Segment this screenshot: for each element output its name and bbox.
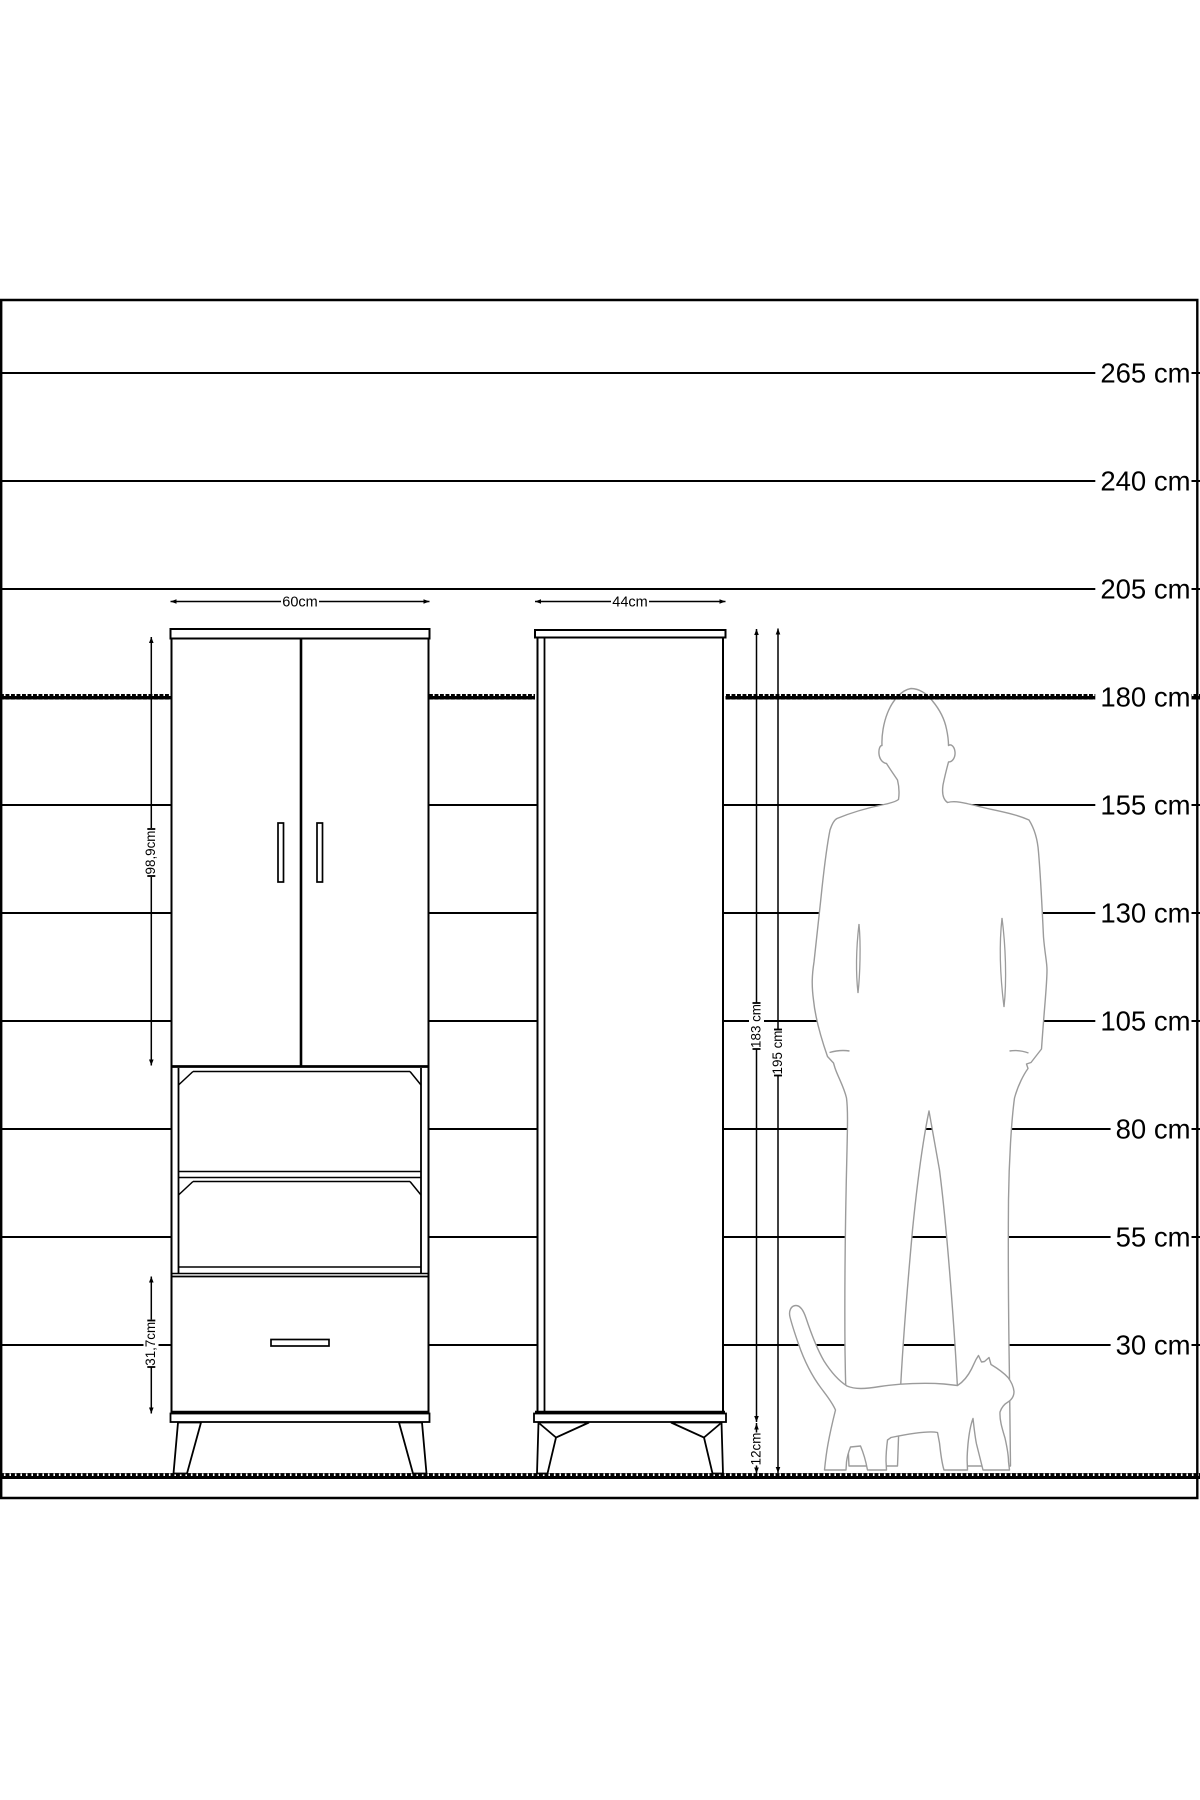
svg-text:195 cm: 195 cm — [770, 1031, 785, 1075]
svg-text:30 cm: 30 cm — [1116, 1330, 1191, 1361]
svg-text:55 cm: 55 cm — [1116, 1222, 1191, 1253]
svg-text:183 cm: 183 cm — [749, 1004, 764, 1048]
svg-text:80 cm: 80 cm — [1116, 1114, 1191, 1145]
svg-text:180 cm: 180 cm — [1100, 682, 1190, 713]
svg-text:98,9cm: 98,9cm — [143, 831, 158, 875]
svg-text:60cm: 60cm — [282, 595, 317, 611]
svg-text:155 cm: 155 cm — [1100, 790, 1190, 821]
svg-text:12cm: 12cm — [749, 1433, 764, 1466]
svg-text:130 cm: 130 cm — [1100, 898, 1190, 929]
svg-text:265 cm: 265 cm — [1100, 358, 1190, 389]
svg-text:205 cm: 205 cm — [1100, 574, 1190, 605]
svg-text:240 cm: 240 cm — [1100, 466, 1190, 497]
svg-text:105 cm: 105 cm — [1100, 1006, 1190, 1037]
svg-text:31,7cm: 31,7cm — [143, 1322, 158, 1366]
svg-text:44cm: 44cm — [612, 595, 647, 611]
